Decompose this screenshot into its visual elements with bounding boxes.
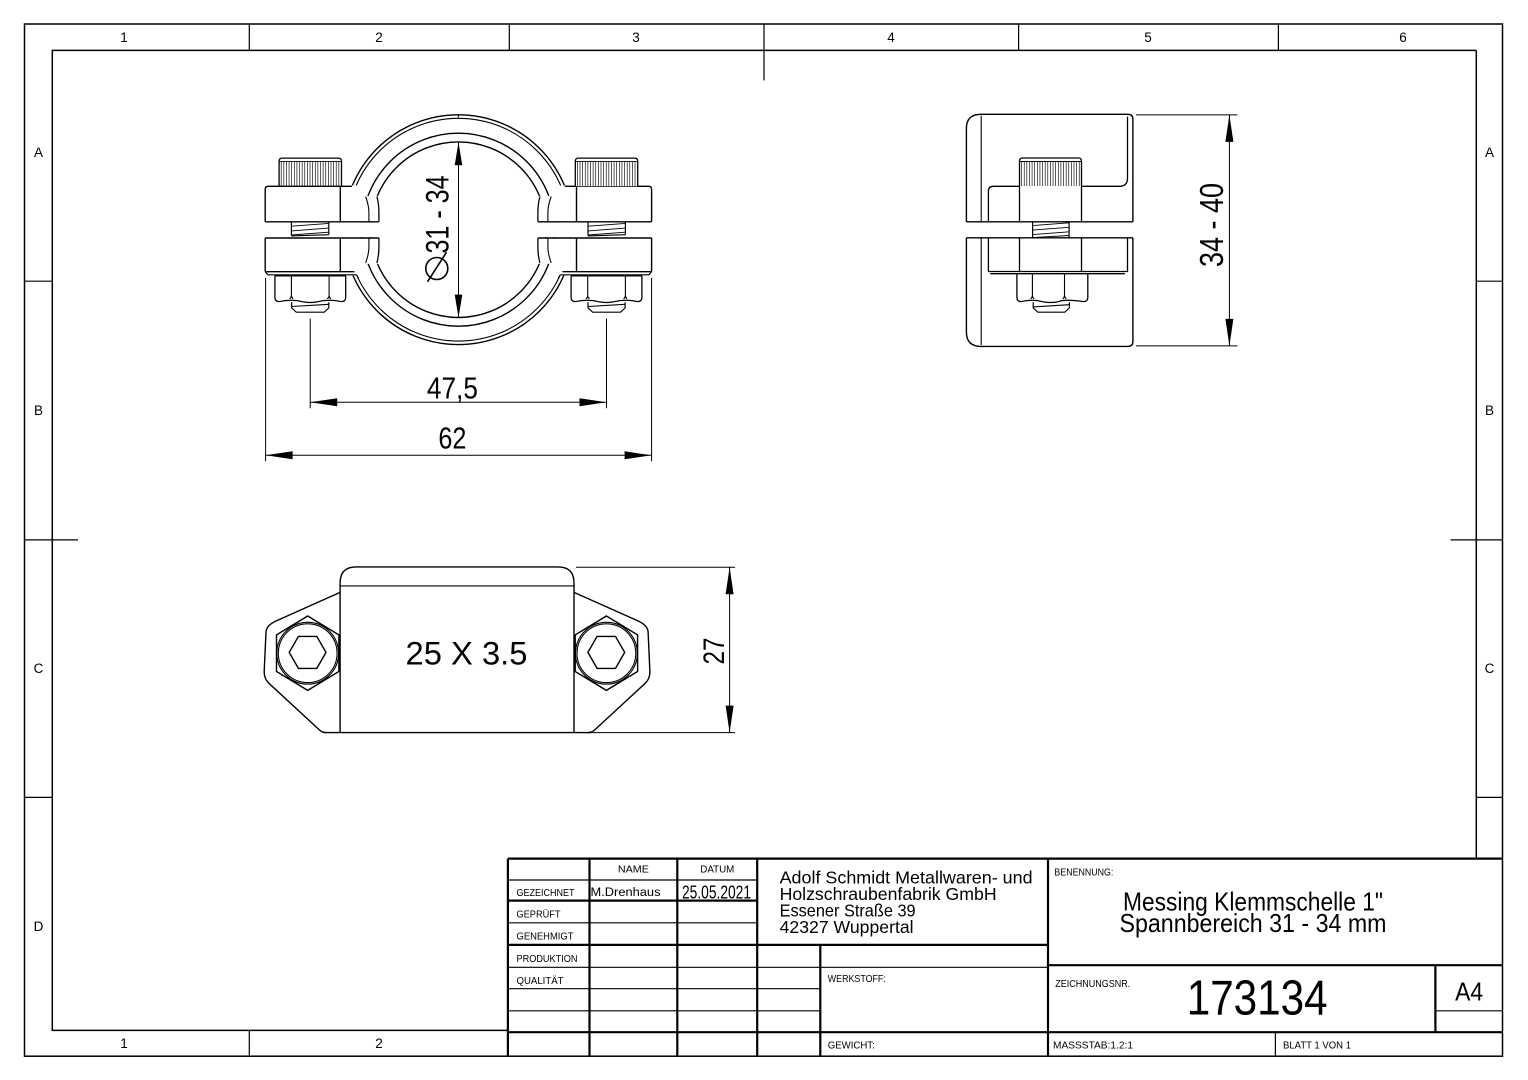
svg-text:BENENNUNG:: BENENNUNG:: [1054, 867, 1113, 879]
svg-text:3: 3: [632, 30, 640, 45]
svg-text:GEWICHT:: GEWICHT:: [828, 1040, 875, 1052]
svg-text:ZEICHNUNGSNR.: ZEICHNUNGSNR.: [1055, 978, 1130, 990]
svg-text:BLATT 1 VON 1: BLATT 1 VON 1: [1283, 1040, 1351, 1052]
svg-text:6: 6: [1399, 30, 1407, 45]
svg-text:25.05.2021: 25.05.2021: [682, 881, 751, 902]
svg-text:NAME: NAME: [618, 864, 649, 876]
svg-text:GEPRÜFT: GEPRÜFT: [517, 909, 562, 921]
svg-text:QUALITÄT: QUALITÄT: [517, 975, 565, 987]
svg-text:B: B: [1485, 403, 1494, 418]
svg-text:173134: 173134: [1187, 972, 1328, 1026]
svg-text:M.Drenhaus: M.Drenhaus: [591, 885, 661, 899]
svg-text:A4: A4: [1455, 978, 1483, 1006]
svg-text:31 - 34: 31 - 34: [420, 176, 456, 254]
svg-text:A: A: [34, 145, 43, 160]
svg-text:MASSSTAB:1.2:1: MASSSTAB:1.2:1: [1053, 1040, 1133, 1052]
svg-text:DATUM: DATUM: [700, 864, 734, 876]
svg-text:B: B: [34, 403, 43, 418]
svg-text:GEZEICHNET: GEZEICHNET: [517, 887, 576, 899]
svg-text:62: 62: [438, 421, 466, 456]
svg-text:Spannbereich 31 - 34 mm: Spannbereich 31 - 34 mm: [1120, 908, 1387, 938]
svg-text:47,5: 47,5: [427, 371, 478, 405]
svg-text:C: C: [34, 661, 44, 676]
svg-text:GENEHMIGT: GENEHMIGT: [517, 931, 575, 943]
svg-text:WERKSTOFF:: WERKSTOFF:: [828, 973, 886, 985]
svg-text:A: A: [1485, 145, 1494, 160]
svg-text:PRODUKTION: PRODUKTION: [517, 953, 578, 965]
svg-text:C: C: [1485, 661, 1495, 676]
svg-text:2: 2: [375, 1036, 383, 1051]
svg-text:27: 27: [698, 638, 731, 665]
svg-text:34 - 40: 34 - 40: [1193, 183, 1230, 267]
svg-text:5: 5: [1144, 30, 1152, 45]
svg-text:1: 1: [120, 1036, 128, 1051]
svg-text:D: D: [34, 919, 44, 934]
svg-text:1: 1: [120, 30, 128, 45]
svg-text:2: 2: [375, 30, 383, 45]
svg-text:25 X 3.5: 25 X 3.5: [406, 636, 528, 672]
svg-text:42327 Wuppertal: 42327 Wuppertal: [780, 917, 914, 937]
svg-text:4: 4: [887, 30, 895, 45]
